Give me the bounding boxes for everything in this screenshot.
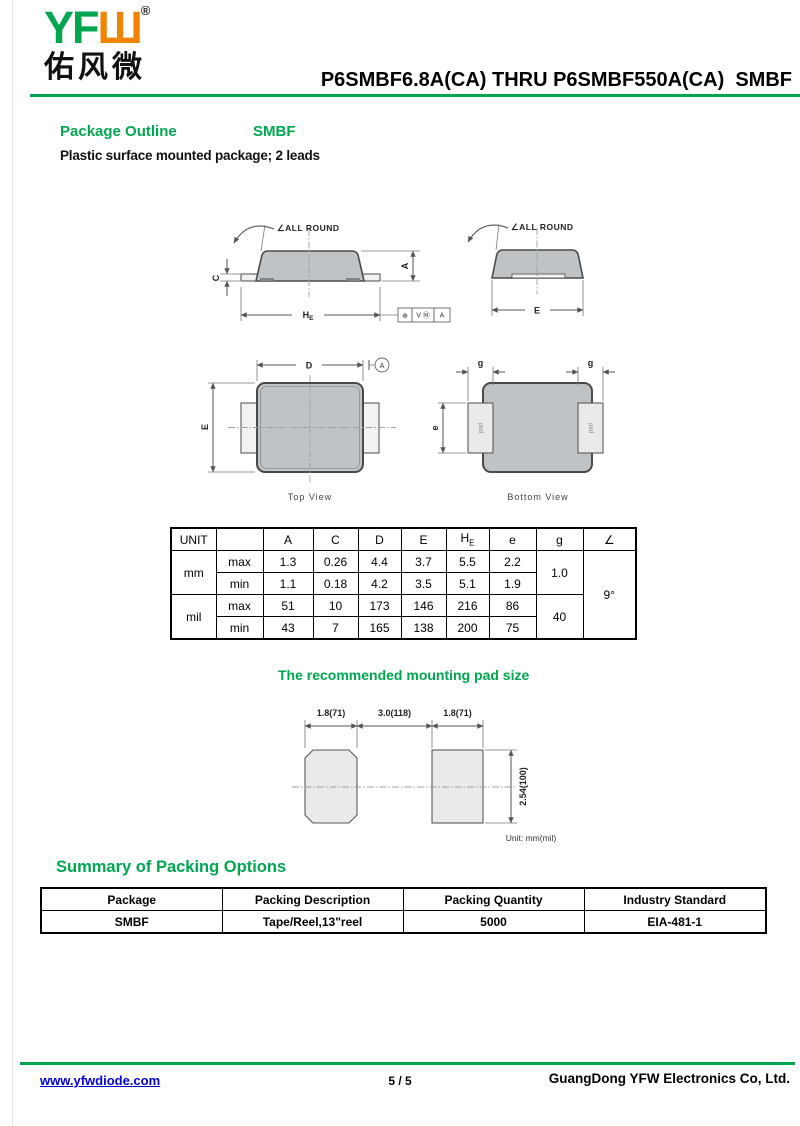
bottom-view: pad pad g g e Bottom View: [430, 358, 615, 502]
dim-c-label: C: [211, 274, 221, 281]
dim-value: 4.4: [358, 551, 401, 573]
col-header-e-lower: e: [489, 528, 536, 551]
angle-value: 9°: [583, 551, 636, 640]
company-name: GuangDong YFW Electronics Co, Ltd.: [549, 1071, 790, 1086]
logo-yf-text: YF: [44, 2, 98, 53]
side-view-end: ∠ALL ROUND E: [468, 222, 583, 316]
unit-header: UNIT: [171, 528, 216, 551]
packing-header-quantity: Packing Quantity: [403, 888, 584, 911]
package-name: SMBF: [253, 123, 296, 140]
g-value-mm: 1.0: [536, 551, 583, 595]
g-value-mil: 40: [536, 595, 583, 640]
dim-value: 165: [358, 617, 401, 640]
lead-right: [362, 403, 379, 453]
mounting-pad-left: [305, 750, 357, 823]
pad-dim-right: 1.8(71): [443, 708, 472, 718]
bottom-view-caption: Bottom View: [507, 492, 568, 502]
col-header-d: D: [358, 528, 401, 551]
dim-e-lower-label: e: [430, 425, 440, 430]
pad-dim-center: 3.0(118): [378, 708, 411, 718]
bound-min: min: [216, 617, 263, 640]
dim-value: 0.26: [313, 551, 358, 573]
document-title: P6SMBF6.8A(CA) THRU P6SMBF550A(CA) SMBF: [321, 69, 792, 92]
col-header-a: A: [263, 528, 313, 551]
col-header-c: C: [313, 528, 358, 551]
all-round-arc: [468, 225, 508, 242]
pad-label: pad: [479, 423, 485, 433]
dim-value: 5.5: [446, 551, 489, 573]
side-view-front: ∠ALL ROUND C A HE: [211, 223, 450, 322]
page-edge-line: [12, 0, 13, 1126]
unit-note: Unit: mm(mil): [506, 833, 557, 843]
package-body-bottom: [483, 383, 592, 472]
datasheet-page: YFШ® 佑风微 P6SMBF6.8A(CA) THRU P6SMBF550A(…: [0, 0, 800, 1126]
standoff-foot: [346, 278, 360, 281]
dim-value: 1.9: [489, 573, 536, 595]
packing-package: SMBF: [41, 911, 222, 934]
section-heading: Package Outline: [60, 123, 177, 140]
dim-value: 5.1: [446, 573, 489, 595]
dim-a-label: A: [400, 262, 410, 269]
dim-value: 3.7: [401, 551, 446, 573]
dims-header-row: UNIT A C D E HE e g ∠: [171, 528, 636, 551]
top-view-caption: Top View: [288, 492, 332, 502]
dim-value: 51: [263, 595, 313, 617]
col-header-e: E: [401, 528, 446, 551]
footer-divider: [20, 1062, 795, 1065]
dim-value: 146: [401, 595, 446, 617]
dim-g-label: g: [478, 358, 484, 368]
dim-e-label: E: [534, 306, 540, 316]
dim-value: 2.2: [489, 551, 536, 573]
table-row: mm max 1.3 0.26 4.4 3.7 5.5 2.2 1.0 9°: [171, 551, 636, 573]
datum-a-label: A: [380, 363, 385, 370]
dim-value: 75: [489, 617, 536, 640]
dim-he-label: HE: [303, 310, 315, 322]
dim-d-label: D: [306, 361, 313, 371]
dim-value: 138: [401, 617, 446, 640]
packing-data-row: SMBF Tape/Reel,13"reel 5000 EIA-481-1: [41, 911, 766, 934]
dim-value: 86: [489, 595, 536, 617]
col-header-g: g: [536, 528, 583, 551]
packing-header-row: Package Packing Description Packing Quan…: [41, 888, 766, 911]
bound-min: min: [216, 573, 263, 595]
dim-value: 216: [446, 595, 489, 617]
logo-wordmark: YFШ®: [44, 4, 150, 50]
packing-standard: EIA-481-1: [584, 911, 766, 934]
all-round-label: ∠ALL ROUND: [511, 222, 574, 232]
bound-max: max: [216, 595, 263, 617]
unit-mm: mm: [171, 551, 216, 595]
dim-value: 7: [313, 617, 358, 640]
company-logo: YFШ® 佑风微: [44, 4, 150, 83]
top-view: D A E Top View: [200, 358, 396, 502]
packing-options-table: Package Packing Description Packing Quan…: [40, 887, 767, 934]
packing-header-standard: Industry Standard: [584, 888, 766, 911]
feature-control-frame: ⊕ V Ⓜ A: [398, 308, 450, 322]
dim-value: 1.3: [263, 551, 313, 573]
lead-left: [241, 403, 258, 453]
dim-value: 4.2: [358, 573, 401, 595]
dim-g-label: g: [588, 358, 594, 368]
packing-description: Tape/Reel,13"reel: [222, 911, 403, 934]
lead-notch: [512, 274, 565, 278]
packing-options-heading: Summary of Packing Options: [56, 858, 286, 877]
dim-value: 43: [263, 617, 313, 640]
dim-value: 173: [358, 595, 401, 617]
dimensions-table: UNIT A C D E HE e g ∠ mm max 1.3 0.26 4.…: [170, 527, 637, 640]
package-outline-drawing: ∠ALL ROUND C A HE: [170, 195, 630, 515]
dim-value: 200: [446, 617, 489, 640]
col-header-angle: ∠: [583, 528, 636, 551]
packing-header-description: Packing Description: [222, 888, 403, 911]
all-round-label: ∠ALL ROUND: [277, 223, 340, 233]
all-round-arc: [234, 226, 274, 243]
fcf-position-symbol: ⊕: [402, 313, 408, 320]
pad-label: pad: [589, 423, 595, 433]
logo-w-glyph: Ш: [98, 2, 141, 53]
unit-mil: mil: [171, 595, 216, 640]
pad-dim-left: 1.8(71): [317, 708, 346, 718]
fcf-tolerance: V Ⓜ: [416, 312, 430, 320]
package-description: Plastic surface mounted package; 2 leads: [60, 148, 320, 163]
bound-max: max: [216, 551, 263, 573]
package-body-front: [256, 251, 364, 281]
col-header-he: HE: [446, 528, 489, 551]
fcf-datum: A: [440, 313, 445, 320]
logo-chinese-text: 佑风微: [44, 53, 150, 83]
packing-quantity: 5000: [403, 911, 584, 934]
dim-e-label: E: [200, 424, 210, 430]
mounting-pad-drawing: 1.8(71) 3.0(118) 1.8(71) 2.54(100) Unit:…: [290, 700, 580, 850]
dim-value: 10: [313, 595, 358, 617]
mounting-pad-right: [432, 750, 483, 823]
blank-header: [216, 528, 263, 551]
standoff-foot: [260, 278, 274, 281]
packing-header-package: Package: [41, 888, 222, 911]
dim-value: 3.5: [401, 573, 446, 595]
header-divider: [30, 94, 800, 97]
pad-dim-height: 2.54(100): [518, 767, 528, 806]
mounting-pad-title: The recommended mounting pad size: [278, 667, 529, 683]
table-row: mil max 51 10 173 146 216 86 40: [171, 595, 636, 617]
registered-mark: ®: [141, 3, 151, 18]
dim-value: 1.1: [263, 573, 313, 595]
dim-value: 0.18: [313, 573, 358, 595]
